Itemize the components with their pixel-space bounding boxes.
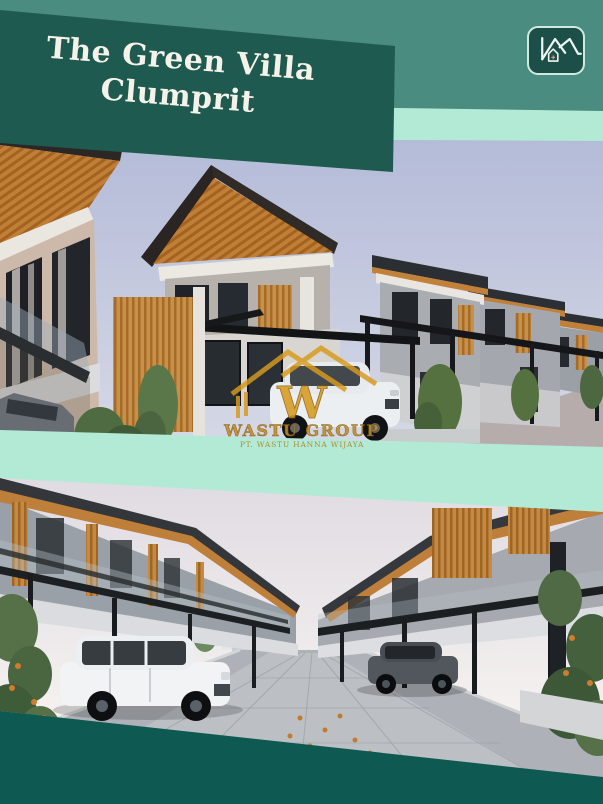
brand-logo-badge	[527, 26, 585, 75]
watermark-company: PT. WASTU HANNA WIJAYA	[240, 440, 364, 449]
watermark-brand: WASTU GROUP	[223, 421, 380, 440]
watermark: W WASTU GROUP PT. WASTU HANNA WIJAYA	[218, 332, 386, 458]
poster: W WASTU GROUP PT. WASTU HANNA WIJAYA The…	[0, 0, 603, 804]
page-title: The Green Villa Clumprit	[12, 28, 347, 129]
watermark-graphic: W WASTU GROUP PT. WASTU HANNA WIJAYA	[218, 332, 386, 458]
house-roofline-icon	[529, 28, 583, 73]
